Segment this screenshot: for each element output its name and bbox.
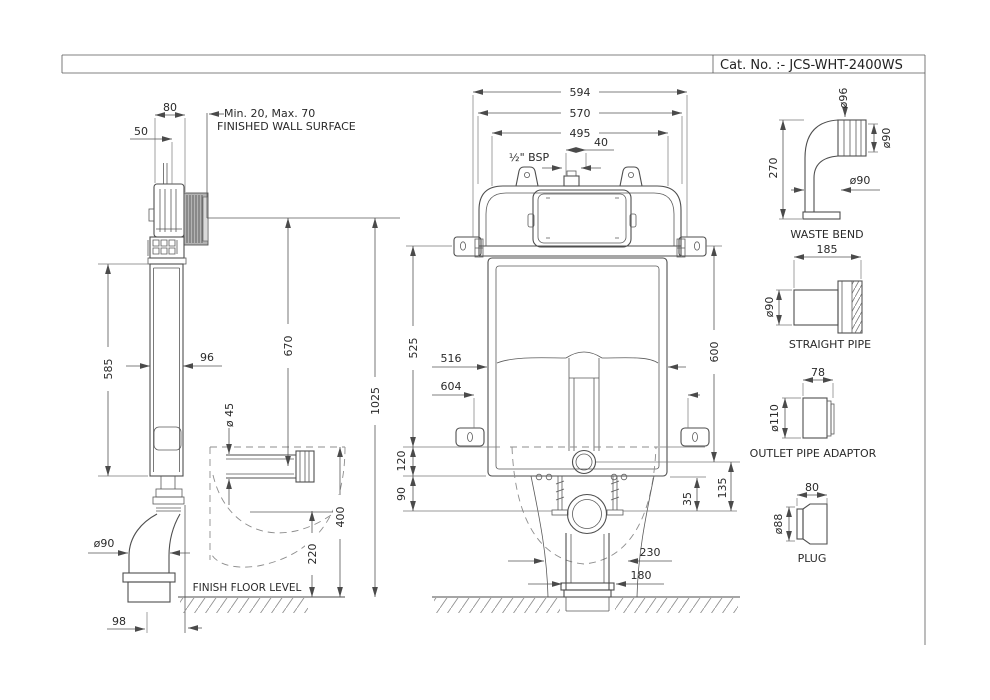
waste-bend-label: WASTE BEND — [790, 228, 863, 241]
dim-135: 135 — [716, 478, 729, 499]
waste-outlet — [568, 495, 607, 534]
dim-oa-78: 78 — [811, 366, 825, 379]
floor-side — [178, 597, 345, 613]
finished-wall-surface-label: FINISHED WALL SURFACE — [217, 120, 356, 133]
dim-40: 40 — [594, 136, 608, 149]
dim-594: 594 — [570, 86, 591, 99]
dim-96: 96 — [200, 351, 214, 364]
dim-670: 670 — [282, 336, 295, 357]
dim-wb-270: 270 — [767, 158, 780, 179]
dim-98: 98 — [112, 615, 126, 628]
inlet-collar — [184, 193, 208, 245]
dim-bsp: ½" BSP — [509, 151, 550, 164]
dim-45: ø 45 — [223, 403, 236, 427]
dim-230: 230 — [640, 546, 661, 559]
dim-sp-90: ø90 — [763, 297, 776, 318]
front-view: 594 570 495 40 ½" BSP 525 120 90 516 604 — [395, 86, 740, 613]
wc-pan-outline — [210, 447, 345, 567]
dim-wb-90-pipe: ø90 — [850, 174, 871, 187]
dim-220: 220 — [306, 544, 319, 565]
dim-plug-80: 80 — [805, 481, 819, 494]
dim-180: 180 — [631, 569, 652, 582]
dim-600: 600 — [708, 342, 721, 363]
dim-sp-185: 185 — [817, 243, 838, 256]
waste-bend-side — [123, 476, 184, 602]
dim-wb-96: ø96 — [837, 88, 850, 109]
plug-label: PLUG — [798, 552, 827, 565]
dim-plug-88: ø88 — [772, 514, 785, 535]
dim-400: 400 — [334, 507, 347, 528]
accessory-waste-bend: ø96 ø90 270 ø90 WASTE BEND — [767, 88, 893, 241]
dim-50: 50 — [134, 125, 148, 138]
flush-pipe-side — [226, 451, 314, 482]
accessory-outlet-pipe-adaptor: 78 ø110 OUTLET PIPE ADAPTOR — [750, 366, 877, 460]
dim-604: 604 — [441, 380, 462, 393]
dim-495: 495 — [570, 127, 591, 140]
dim-120: 120 — [395, 451, 408, 472]
floor-front — [432, 597, 740, 613]
catalog-number: Cat. No. :- JCS-WHT-2400WS — [720, 58, 903, 73]
soil-pipe — [561, 533, 614, 597]
dim-1025: 1025 — [369, 387, 382, 415]
dim-585: 585 — [102, 359, 115, 380]
frame-arch — [479, 186, 681, 246]
dim-90: 90 — [395, 487, 408, 501]
side-view: FINISH FLOOR LEVEL 80 50 Min. 20, Max. 7… — [88, 101, 400, 633]
finish-floor-level-label: FINISH FLOOR LEVEL — [193, 582, 302, 594]
cistern-side — [150, 264, 183, 476]
technical-drawing: Cat. No. :- JCS-WHT-2400WS — [0, 0, 990, 700]
actuator-rod — [164, 163, 168, 184]
cistern-front — [488, 258, 667, 476]
dim-wb-90-collar: ø90 — [880, 128, 893, 149]
dim-oa-110: ø110 — [768, 404, 781, 432]
dim-516: 516 — [441, 352, 462, 365]
accessory-straight-pipe: 185 ø90 STRAIGHT PIPE — [763, 243, 871, 351]
dim-570: 570 — [570, 107, 591, 120]
dim-90-bend: ø90 — [94, 537, 115, 550]
side-brackets — [456, 428, 709, 446]
dim-525: 525 — [407, 338, 420, 359]
straight-pipe-label: STRAIGHT PIPE — [789, 338, 871, 351]
flush-mechanism — [148, 237, 186, 264]
dim-80: 80 — [163, 101, 177, 114]
pan-dash-arc — [512, 447, 656, 564]
fixing-rods — [552, 476, 623, 515]
flush-outlet — [573, 451, 596, 474]
dim-35: 35 — [681, 492, 694, 506]
outlet-pipe-adaptor-label: OUTLET PIPE ADAPTOR — [750, 447, 877, 460]
accessory-plug: 80 ø88 PLUG — [772, 481, 827, 565]
access-panel — [528, 190, 636, 247]
drawing-sheet: Cat. No. :- JCS-WHT-2400WS — [0, 0, 990, 700]
dim-wall-range: Min. 20, Max. 70 — [224, 107, 315, 120]
